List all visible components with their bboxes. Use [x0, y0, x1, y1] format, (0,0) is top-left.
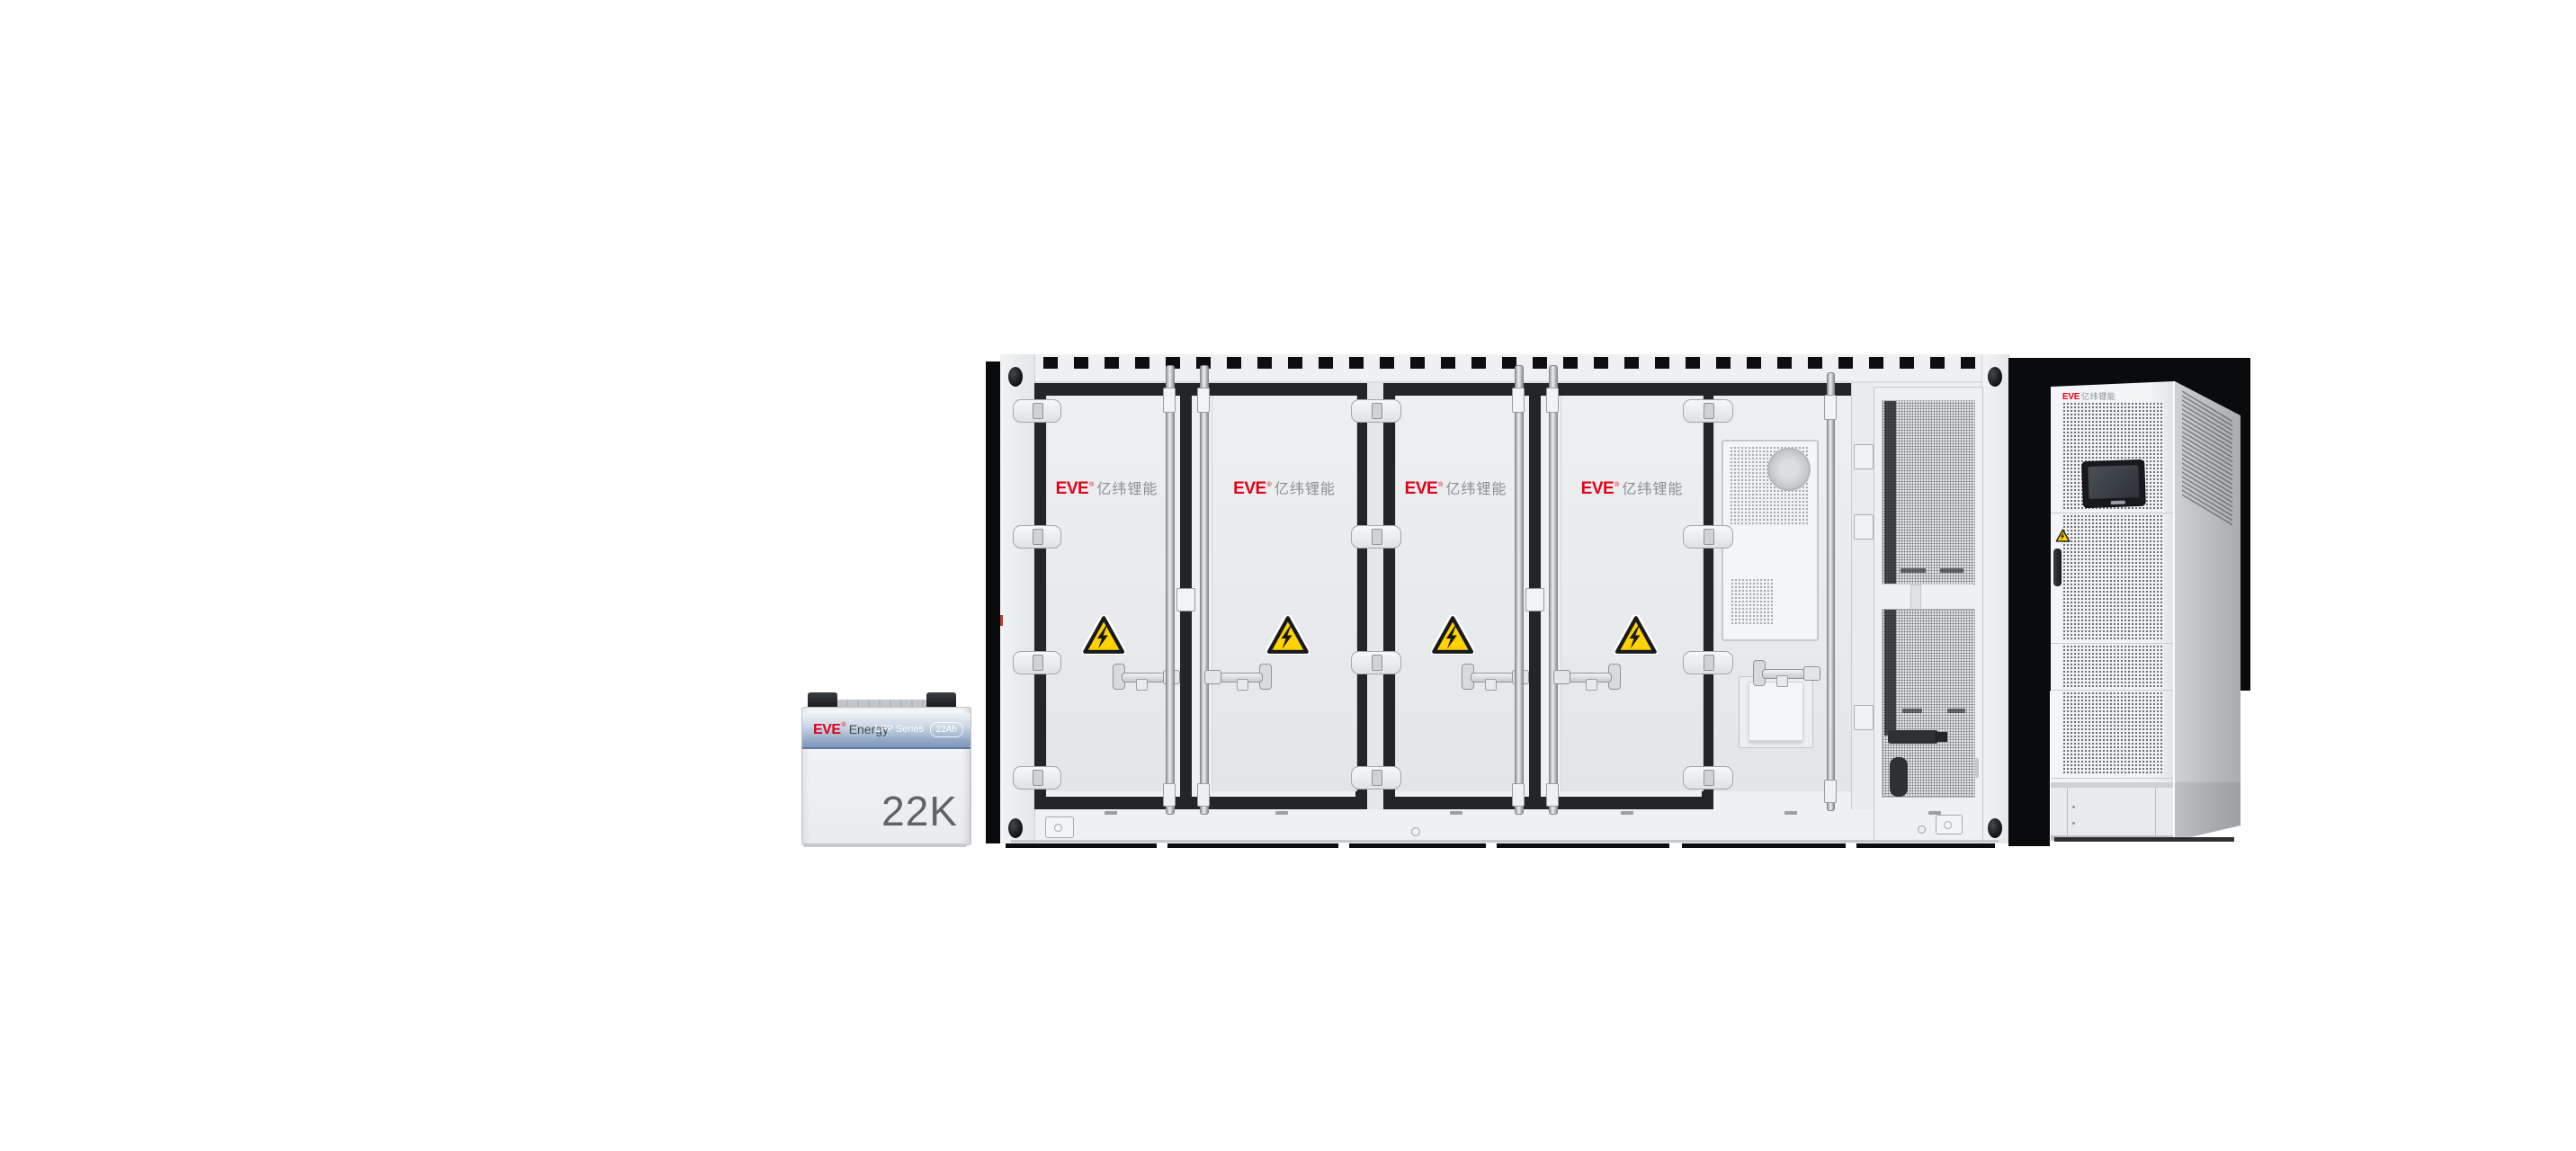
plinth-seam [2067, 788, 2068, 835]
pipe-elbow [1890, 757, 1908, 797]
hmi-display-area [2088, 465, 2139, 499]
base-mark [1450, 811, 1462, 815]
base-mark [1105, 811, 1117, 815]
eve-logo: EVE®亿纬锂能 [1233, 477, 1336, 499]
registered-mark-icon: ® [1438, 482, 1443, 488]
door-gasket-vertical [1383, 383, 1395, 809]
registered-mark-icon: ® [1089, 482, 1094, 488]
eve-logo: EVE亿纬锂能 [2062, 390, 2115, 402]
cabinet-front-panel: EVE亿纬锂能 [2051, 376, 2175, 841]
container-body: EVE®亿纬锂能 EVE®亿纬锂能 [1000, 354, 2009, 843]
panel-seam [2051, 513, 2175, 513]
corner-post-right [1981, 354, 2010, 843]
roof-corrugation [1013, 357, 1997, 369]
mesh-interior-dash [1901, 568, 1926, 573]
hinge-strap [1013, 399, 1061, 423]
crossbar-stub [1910, 584, 1921, 611]
door-gasket-vertical [1034, 383, 1046, 809]
hinge-block [1854, 444, 1874, 469]
brand-chinese-text: 亿纬锂能 [2081, 390, 2115, 402]
high-voltage-warning-icon [1266, 615, 1310, 655]
door-seam-gasket [1529, 383, 1541, 809]
drain-hole [1411, 827, 1420, 836]
brand-text: EVE [1056, 479, 1089, 499]
eve-logo: EVE®亿纬锂能 [1581, 477, 1684, 499]
pipe-junction-box [1935, 732, 1947, 742]
lock-rod [1549, 365, 1558, 815]
high-voltage-warning-icon [1082, 615, 1125, 655]
hinge-strap [1683, 525, 1733, 549]
base-mark [1784, 811, 1797, 815]
pipe-horizontal [1888, 730, 1938, 744]
door-latch-handle [1207, 665, 1270, 687]
hinge-strap [1351, 766, 1401, 790]
side-plinth-shade [2175, 782, 2241, 836]
ground-shadow [1006, 843, 1157, 848]
base-bottom-edge [1011, 840, 1999, 843]
capacity-badge: 22Ah [930, 722, 963, 737]
cable-bundle [1884, 610, 1896, 736]
base-latch [1936, 815, 1963, 834]
hinge-strap [1351, 525, 1401, 549]
eve-logo: EVE®亿纬锂能 [1056, 477, 1158, 499]
mesh-panel-bottom [1882, 609, 1975, 798]
lock-rod [1827, 372, 1835, 811]
battery-cell-22k: EVE®Energy LFP Series 22Ah 22K [801, 691, 970, 848]
mesh-door-latch-slot [1974, 758, 1979, 778]
perforated-panel-4 [2062, 692, 2164, 775]
ground-shadow [1167, 843, 1338, 848]
high-voltage-warning-icon [1614, 615, 1657, 655]
warning-triangle-icon [2055, 529, 2071, 542]
plinth-screw [2072, 806, 2075, 808]
hinge-strap [1683, 651, 1733, 674]
brand-text: EVE [1233, 479, 1266, 499]
handle-keeper [1776, 675, 1788, 687]
panel-seam [2051, 690, 2175, 691]
panel-seam [2051, 643, 2175, 644]
container-door-leaf-1: EVE®亿纬锂能 [1046, 396, 1167, 791]
cabinet-door-handle [2053, 549, 2062, 586]
perforated-panel-2 [2062, 515, 2164, 640]
corner-casting-hole-top-right [1988, 367, 2002, 387]
door-seam-gasket [1180, 383, 1192, 809]
pcs-cabinet: EVE亿纬锂能 [2050, 376, 2250, 841]
brand-chinese-text: 亿纬锂能 [1445, 477, 1507, 498]
hinge-strap [1013, 525, 1061, 549]
plinth-seam [2155, 788, 2156, 835]
ground-shadow [1856, 843, 1995, 848]
series-label: LFP Series [875, 724, 924, 735]
handle-keeper [1485, 679, 1497, 691]
registered-mark-icon: ® [842, 722, 846, 728]
base-mark [1275, 811, 1288, 815]
perforated-panel-3 [2062, 646, 2164, 688]
base-mark [1928, 811, 1941, 815]
mesh-interior-dash [1940, 568, 1963, 573]
mesh-interior-dash [1947, 709, 1965, 713]
battery-ground-shadow [803, 843, 967, 847]
handle-keeper [1586, 679, 1597, 691]
plinth-screw [2072, 822, 2075, 825]
hvac-fan-icon [1767, 448, 1811, 491]
brand-text: EVE [1405, 479, 1438, 499]
hvac-unit [1722, 440, 1819, 641]
lock-rod [1200, 365, 1209, 815]
door-latch-handle [1556, 665, 1619, 687]
hinge-strap [1351, 651, 1401, 674]
hinge-block [1854, 514, 1874, 540]
ground-shadow [1682, 843, 1846, 848]
model-number-text: 22K [881, 787, 958, 835]
container-door-leaf-2: EVE®亿纬锂能 [1212, 396, 1357, 791]
product-render-canvas: EVE®Energy LFP Series 22Ah 22K [0, 0, 2576, 1151]
gap-shadow-band [2008, 358, 2050, 846]
hmi-touchscreen [2081, 460, 2146, 508]
base-mark [1621, 811, 1633, 815]
high-voltage-warning-icon [1431, 615, 1474, 655]
brand-chinese-text: 亿纬锂能 [1622, 477, 1683, 498]
handle-keeper [1237, 679, 1248, 691]
ground-shadow [2054, 837, 2234, 842]
mesh-bay [1874, 387, 1983, 845]
brand-text: EVE [2062, 392, 2080, 402]
panel-seam [2051, 778, 2175, 779]
mullion-post [1367, 383, 1383, 809]
container-side-shadow-left [986, 361, 1000, 843]
hinge-strap [1351, 399, 1401, 423]
brand-chinese-text: 亿纬锂能 [1275, 477, 1336, 498]
red-seal-tag [1000, 615, 1003, 626]
vent-box [1739, 676, 1813, 748]
door-latch-handle [1755, 662, 1818, 683]
brand-chinese-text: 亿纬锂能 [1096, 477, 1158, 498]
lock-rod [1166, 365, 1175, 815]
cabinet-side-panel [2175, 376, 2241, 841]
mesh-crossbar [1882, 584, 1973, 611]
eve-logo: EVE®亿纬锂能 [1405, 477, 1507, 499]
plinth-body [2051, 788, 2175, 835]
hvac-exhaust-grille [1730, 579, 1773, 624]
hinge-strap [1013, 651, 1061, 674]
lock-rod [1515, 365, 1524, 815]
brand-text: EVE [1581, 479, 1614, 499]
hinge-strap [1683, 766, 1733, 790]
vent-box-cover [1749, 682, 1803, 741]
drain-hole [1918, 825, 1926, 834]
side-louver-vent [2182, 390, 2232, 527]
hmi-connector-strip [2111, 501, 2125, 505]
hinge-strap [1683, 399, 1733, 423]
corner-casting-hole-bottom-right [1988, 818, 2002, 838]
handle-keeper [1136, 679, 1148, 691]
base-latch [1045, 816, 1074, 838]
brand-text: EVE [813, 722, 841, 738]
mesh-panel-top [1882, 400, 1975, 585]
cabinet-fold-highlight [2173, 381, 2175, 841]
bess-container: EVE®亿纬锂能 EVE®亿纬锂能 [986, 353, 2011, 850]
hinge-strap [1013, 766, 1061, 790]
mesh-interior-dash [1902, 709, 1922, 713]
corner-casting-hole-bottom-left [1008, 818, 1023, 838]
registered-mark-icon: ® [1614, 482, 1619, 488]
door-jamb [1851, 383, 1874, 809]
registered-mark-icon: ® [1267, 482, 1272, 488]
cable-bundle [1884, 401, 1896, 584]
battery-cell-body: EVE®Energy LFP Series 22Ah 22K [801, 707, 971, 845]
ground-shadow [1497, 843, 1669, 848]
door-frame-gasket-top [1034, 383, 1851, 396]
battery-label-band: EVE®Energy LFP Series 22Ah [802, 713, 970, 749]
corner-casting-hole-top-left [1008, 367, 1023, 387]
ground-shadow [1349, 843, 1486, 848]
container-door-leaf-4: EVE®亿纬锂能 [1561, 396, 1704, 791]
hinge-block [1854, 705, 1874, 730]
container-door-leaf-3: EVE®亿纬锂能 [1395, 396, 1516, 791]
